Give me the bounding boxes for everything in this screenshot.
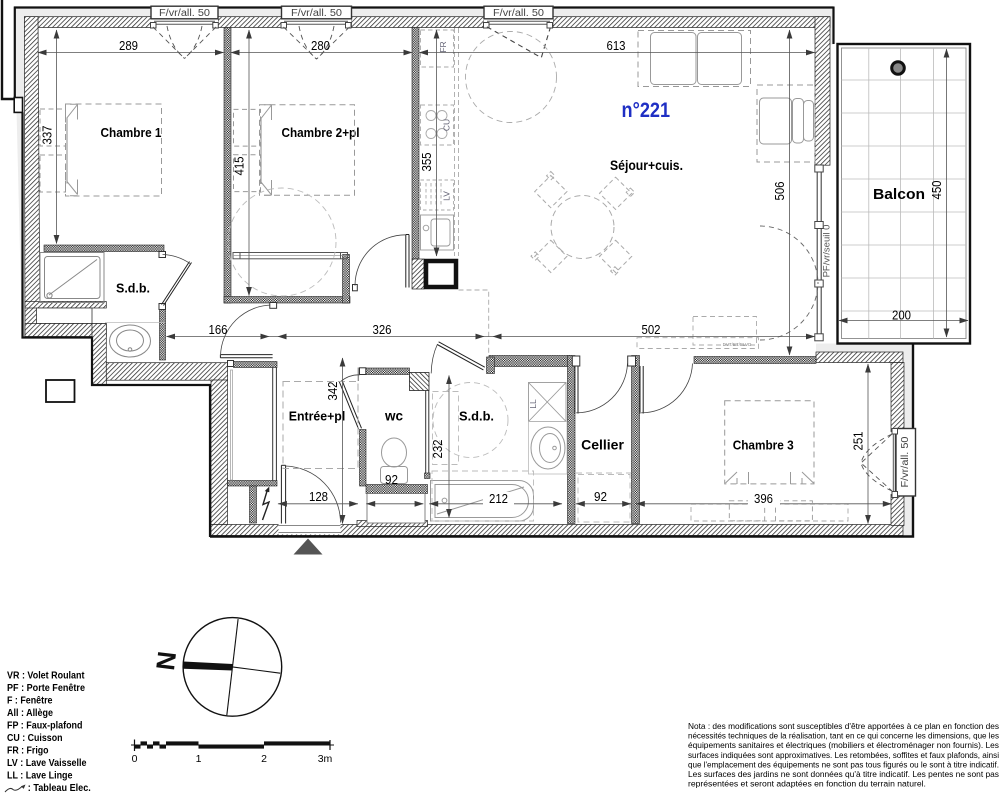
svg-text:wc: wc — [384, 409, 404, 424]
svg-text:166: 166 — [209, 322, 228, 337]
svg-text:que l'emplacement des équipeme: que l'emplacement des équipements ne son… — [688, 759, 999, 769]
svg-text:450: 450 — [929, 181, 944, 200]
svg-text:200: 200 — [892, 308, 911, 323]
svg-text:289: 289 — [119, 38, 138, 53]
svg-text:F/vr/all. 50: F/vr/all. 50 — [900, 436, 911, 487]
svg-text:Nota : des modifications sont: Nota : des modifications sont susceptibl… — [688, 721, 999, 731]
svg-text:502: 502 — [642, 322, 661, 337]
svg-text:VR : Volet Roulant: VR : Volet Roulant — [7, 670, 85, 682]
svg-text:F : Fenêtre: F : Fenêtre — [7, 695, 53, 707]
svg-text:DVT/BT/BLVD: DVT/BT/BLVD — [723, 342, 752, 347]
svg-text:représentées et seront adaptée: représentées et seront adaptées en fonct… — [688, 779, 926, 789]
svg-text:Balcon: Balcon — [873, 186, 925, 203]
svg-text:PF/vr/seuil 0: PF/vr/seuil 0 — [822, 225, 833, 278]
svg-text:All : Allège: All : Allège — [7, 707, 53, 719]
svg-text:PF : Porte Fenêtre: PF : Porte Fenêtre — [7, 682, 85, 694]
svg-text:LV : Lave Vaisselle: LV : Lave Vaisselle — [7, 757, 87, 769]
svg-text:3m: 3m — [318, 753, 333, 765]
svg-text:: Tableau Elec.: : Tableau Elec. — [28, 782, 91, 794]
svg-text:LV: LV — [442, 191, 452, 201]
svg-text:S.d.b.: S.d.b. — [459, 409, 494, 424]
svg-text:396: 396 — [754, 491, 773, 506]
svg-text:355: 355 — [419, 153, 434, 172]
svg-text:Cellier: Cellier — [581, 437, 624, 453]
svg-text:équipements sanitaires et élec: équipements sanitaires et électriques (m… — [688, 740, 999, 750]
svg-text:232: 232 — [430, 440, 445, 459]
svg-text:N: N — [150, 650, 182, 672]
svg-text:Chambre 2+pl: Chambre 2+pl — [282, 125, 360, 140]
svg-text:S.d.b.: S.d.b. — [116, 281, 150, 296]
svg-text:Entrée+pl: Entrée+pl — [289, 409, 346, 424]
svg-text:2: 2 — [261, 753, 267, 765]
svg-text:92: 92 — [385, 472, 398, 487]
svg-text:Les surfaces des jardins ne so: Les surfaces des jardins ne sont données… — [688, 769, 999, 779]
svg-text:342: 342 — [325, 382, 340, 401]
svg-text:92: 92 — [594, 489, 607, 504]
svg-text:212: 212 — [489, 491, 508, 506]
svg-text:0: 0 — [132, 753, 138, 765]
svg-text:LL : Lave Linge: LL : Lave Linge — [7, 770, 73, 782]
svg-text:506: 506 — [772, 182, 787, 201]
svg-text:Chambre 1: Chambre 1 — [101, 125, 162, 140]
svg-text:FP : Faux-plafond: FP : Faux-plafond — [7, 720, 83, 732]
svg-text:surfaces indiquées sont approx: surfaces indiquées sont approximatives. … — [688, 750, 999, 760]
svg-text:n°221: n°221 — [622, 99, 671, 122]
svg-text:Séjour+cuis.: Séjour+cuis. — [610, 158, 683, 173]
svg-text:415: 415 — [232, 157, 247, 176]
svg-text:1: 1 — [196, 753, 202, 765]
svg-text:Chambre 3: Chambre 3 — [733, 438, 794, 453]
svg-text:F/vr/all. 50: F/vr/all. 50 — [291, 8, 342, 19]
svg-text:128: 128 — [309, 489, 328, 504]
svg-text:280: 280 — [311, 38, 330, 53]
svg-text:LL: LL — [528, 399, 538, 409]
svg-text:FR: FR — [438, 41, 448, 52]
svg-text:F/vr/all. 50: F/vr/all. 50 — [159, 8, 210, 19]
svg-text:F/vr/all. 50: F/vr/all. 50 — [493, 8, 544, 19]
svg-text:CU : Cuisson: CU : Cuisson — [7, 732, 63, 744]
svg-text:326: 326 — [373, 322, 392, 337]
svg-text:FR : Frigo: FR : Frigo — [7, 745, 49, 757]
svg-text:nécessités techniques de la ré: nécessités techniques de la réalisation,… — [688, 731, 999, 741]
svg-text:337: 337 — [40, 126, 55, 145]
svg-text:CU: CU — [442, 119, 452, 131]
svg-text:251: 251 — [851, 432, 866, 451]
svg-text:613: 613 — [607, 38, 626, 53]
